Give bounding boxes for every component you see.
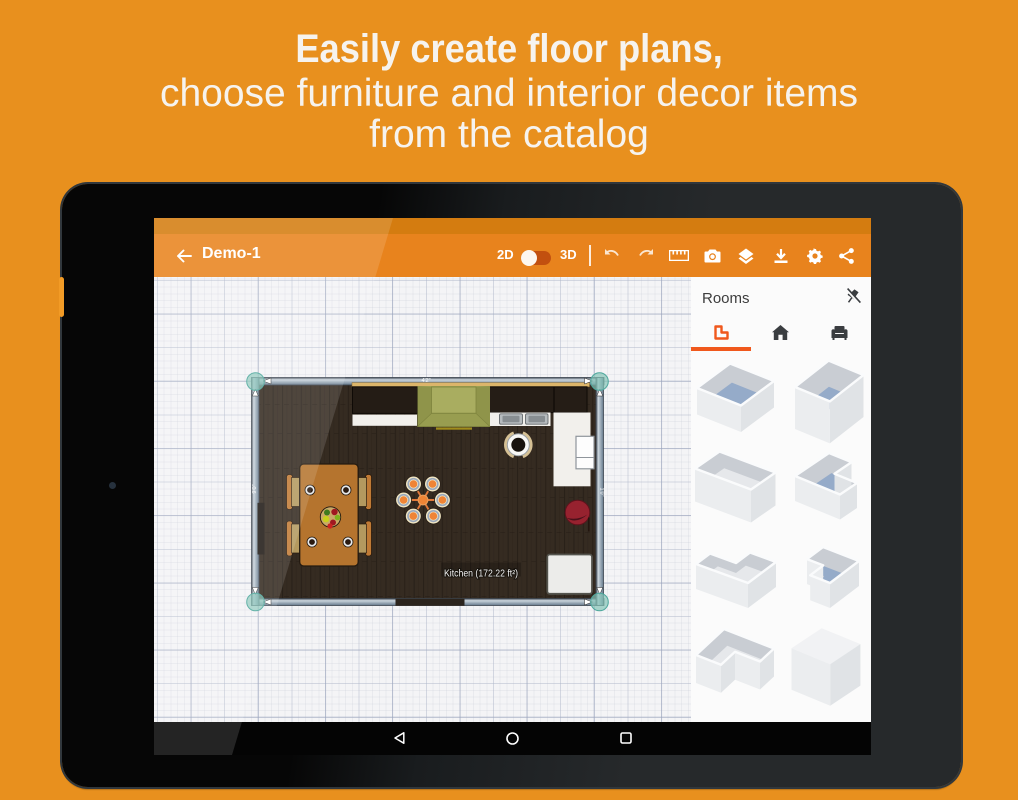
svg-text:1'0": 1'0" xyxy=(599,487,605,496)
svg-text:Kitchen (172.22 ft²): Kitchen (172.22 ft²) xyxy=(444,569,518,580)
svg-text:9'0": 9'0" xyxy=(252,484,258,493)
svg-text:4'2": 4'2" xyxy=(421,378,430,384)
